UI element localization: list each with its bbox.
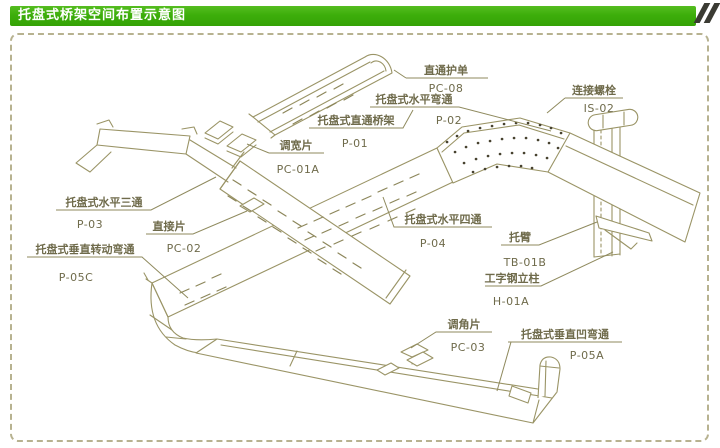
label-pc01a-code: PC-01A: [277, 163, 320, 176]
label-p05a-name: 托盘式垂直凹弯通: [521, 327, 609, 341]
label-p05c-name: 托盘式垂直转动弯通: [36, 242, 135, 256]
label-pc02-code: PC-02: [167, 242, 202, 255]
label-p04-code: P-04: [420, 237, 446, 250]
label-pc01a-name: 调宽片: [280, 138, 313, 152]
label-tb01b-name: 托臂: [509, 230, 531, 244]
label-is02-code: IS-02: [584, 102, 615, 115]
label-pc02-name: 直接片: [153, 219, 186, 233]
callout-is02: 连接螺栓 IS-02: [547, 83, 623, 115]
callout-tb01b: 托臂 TB-01B: [501, 222, 597, 269]
callout-p05a: 托盘式垂直凹弯通 P-05A: [497, 327, 622, 391]
label-p04-name: 托盘式水平四通: [405, 212, 482, 226]
label-p02-code: P-02: [436, 114, 462, 127]
bottom-run: [196, 339, 557, 423]
label-is02-name: 连接螺栓: [572, 83, 616, 97]
diagram-canvas: 直通护单 PC-08 托盘式水平弯通 P-02 托盘式直通桥架 P-01 调宽片…: [0, 0, 720, 448]
label-h01a-name: 工字钢立柱: [485, 271, 540, 285]
label-tb01b-code: TB-01B: [503, 256, 547, 269]
label-p01-name: 托盘式直通桥架: [318, 113, 395, 127]
label-p01-code: P-01: [342, 137, 368, 150]
label-p02-name: 托盘式水平弯通: [376, 92, 453, 106]
label-p03-code: P-03: [77, 218, 103, 231]
callout-p03: 托盘式水平三通 P-03: [56, 177, 216, 231]
label-h01a-code: H-01A: [493, 295, 529, 308]
label-p05a-code: P-05A: [570, 349, 604, 362]
label-pc03-code: PC-03: [451, 341, 486, 354]
callout-p01: 托盘式直通桥架 P-01: [309, 110, 413, 150]
callout-pc08: 直通护单 PC-08: [394, 63, 488, 95]
label-p03-name: 托盘式水平三通: [66, 195, 143, 209]
callout-pc01a: 调宽片 PC-01A: [247, 138, 324, 176]
label-pc08-name: 直通护单: [424, 63, 468, 77]
label-pc03-name: 调角片: [448, 317, 481, 331]
label-p05c-code: P-05C: [59, 271, 94, 284]
